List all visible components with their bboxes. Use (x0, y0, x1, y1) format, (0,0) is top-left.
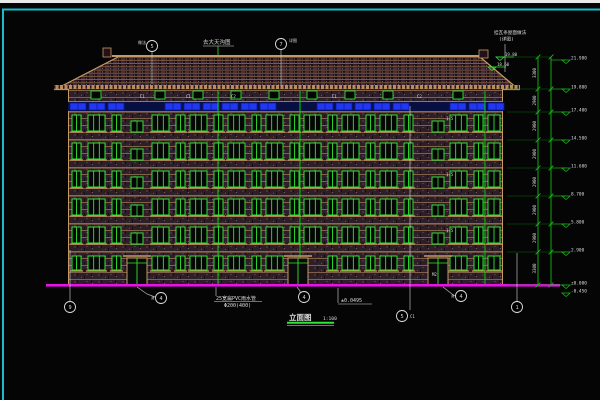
window-sill (110, 159, 123, 160)
callout-text: C1 (410, 314, 415, 319)
window (190, 171, 207, 187)
window-sill (326, 243, 339, 244)
window (228, 143, 245, 159)
window-sill (110, 243, 123, 244)
window (88, 256, 105, 270)
elevation-value: 8.700 (571, 192, 585, 198)
elevation-symbol (562, 224, 570, 228)
window-sill (378, 243, 399, 244)
window-sill (110, 187, 123, 188)
window (228, 256, 245, 270)
window-sill (486, 215, 502, 216)
elevation-value: ±0.000 (571, 281, 587, 287)
window-sill (174, 243, 187, 244)
roof-note-line2: (详图) (499, 36, 514, 43)
elevation-value: -0.450 (571, 289, 587, 295)
window-sill (288, 159, 301, 160)
callout-bubble-label: 5 (400, 314, 403, 320)
window-sill (486, 270, 502, 271)
top-center-note: 去大天沟图 (203, 38, 231, 46)
window-sill (340, 270, 361, 271)
window (380, 227, 397, 243)
window-type-label: 1.5 (446, 228, 454, 233)
window-sill (448, 270, 469, 271)
window-sill (212, 270, 225, 271)
window-sill (188, 187, 209, 188)
window-sill (486, 159, 502, 160)
pvc-note-line1: 25宽扁PVC雨水管 (216, 295, 256, 302)
window-sill (70, 187, 83, 188)
window-sill (188, 243, 209, 244)
window (88, 143, 105, 159)
window-sill (302, 243, 323, 244)
window-sill (212, 131, 225, 132)
window-sill (70, 159, 83, 160)
window-sill (448, 243, 469, 244)
window (266, 256, 283, 270)
window (304, 115, 321, 131)
window-sill (340, 131, 361, 132)
window-sill (264, 215, 285, 216)
window-sill (150, 243, 171, 244)
window-type-label: C1 (186, 94, 191, 99)
window (342, 171, 359, 187)
roof (54, 48, 520, 90)
window-sill (150, 131, 171, 132)
window-sill (288, 187, 301, 188)
window-sill (110, 215, 123, 216)
elevation-symbol (562, 252, 570, 256)
roof-elevation-value: 19.80 (505, 52, 518, 57)
window-sill (288, 131, 301, 132)
window-sill (472, 187, 485, 188)
dim-value: 2900 (532, 232, 537, 243)
window (190, 227, 207, 243)
window-sill (402, 215, 415, 216)
window-sill (448, 187, 469, 188)
window-sill (364, 215, 377, 216)
callout-text: 做法 (138, 39, 146, 45)
window (342, 143, 359, 159)
window-sill (226, 159, 247, 160)
window (152, 256, 169, 270)
dim-value: 2900 (532, 120, 537, 131)
dim-value: 2900 (532, 176, 537, 187)
window-sill (70, 243, 83, 244)
roof-elevation-symbol (496, 57, 504, 61)
window-sill (302, 159, 323, 160)
window-sill (70, 215, 83, 216)
elevation-symbol (562, 89, 570, 93)
elevation-symbol (562, 60, 570, 64)
window-sill (250, 215, 263, 216)
window-sill (86, 243, 107, 244)
attic-window (345, 91, 355, 99)
window (450, 143, 467, 159)
dim-value: 3300 (532, 263, 537, 274)
callout-text: 详图 (289, 37, 297, 43)
elevation-value: 21.980 (571, 56, 587, 62)
window-sill (364, 159, 377, 160)
window-type-label: 1.5 (446, 116, 454, 121)
dim-value: 3300 (532, 67, 537, 78)
callout-bubble-label: 5 (150, 44, 153, 50)
window-sill (486, 131, 502, 132)
elevation-symbol (562, 285, 570, 289)
callout-bubble-label: 9 (68, 305, 71, 311)
window-sill (86, 215, 107, 216)
elevation-value: 5.800 (571, 220, 585, 226)
elevation-value: 17.400 (571, 108, 587, 114)
window-sill (70, 270, 83, 271)
window-sill (188, 159, 209, 160)
window-sill (250, 131, 263, 132)
window (450, 199, 467, 215)
window-sill (472, 243, 485, 244)
window (152, 199, 169, 215)
window-sill (340, 159, 361, 160)
window (88, 171, 105, 187)
window (342, 199, 359, 215)
blue-band-bg (68, 102, 503, 111)
window (190, 256, 207, 270)
window-sill (326, 131, 339, 132)
window-sill (364, 131, 377, 132)
window-sill (110, 131, 123, 132)
window-sill (174, 159, 187, 160)
roof-slope (56, 57, 518, 89)
window-sill (378, 131, 399, 132)
window (152, 115, 169, 131)
ground-line (46, 284, 560, 287)
callout-bubble-label: 7 (279, 42, 282, 48)
window-sill (302, 187, 323, 188)
window-sill (212, 187, 225, 188)
window (380, 143, 397, 159)
window-sill (264, 159, 285, 160)
window-sill (402, 187, 415, 188)
window (190, 143, 207, 159)
window-sill (302, 131, 323, 132)
window-sill (288, 215, 301, 216)
window-sill (226, 187, 247, 188)
window (228, 171, 245, 187)
elevation-symbol (562, 196, 570, 200)
window-sill (378, 215, 399, 216)
window (304, 143, 321, 159)
window-sill (250, 159, 263, 160)
top-white-strip (0, 0, 600, 3)
window-type-label: 1.5 (446, 172, 454, 177)
window-type-label: C1 (332, 94, 337, 99)
window (380, 171, 397, 187)
window-sill (378, 270, 399, 271)
window-sill (302, 215, 323, 216)
window-sill (174, 215, 187, 216)
elevation-symbol (562, 293, 570, 297)
window-sill (364, 243, 377, 244)
attic-window (155, 91, 165, 99)
callout-text: M (452, 294, 455, 299)
window (266, 199, 283, 215)
window (380, 256, 397, 270)
window (304, 171, 321, 187)
window-type-label: C2 (417, 94, 422, 99)
level-note: ±0.0495 (341, 298, 362, 304)
attic-window (307, 91, 317, 99)
window (228, 199, 245, 215)
window (152, 227, 169, 243)
window-sill (188, 215, 209, 216)
callout-bubble-label: 4 (302, 295, 305, 301)
window-sill (250, 270, 263, 271)
callout-bubble-label: 1 (515, 305, 518, 311)
attic-window (193, 91, 203, 99)
window (152, 143, 169, 159)
window (190, 115, 207, 131)
cad-viewport: C1C1C2C1C21.51.51.5M2 330029002900290029… (0, 0, 600, 400)
window-sill (448, 131, 469, 132)
window-sill (150, 215, 171, 216)
cad-canvas: C1C1C2C1C21.51.51.5M2 330029002900290029… (0, 0, 600, 400)
pvc-note-line2: Φ200(400) (224, 303, 251, 309)
window-sill (402, 131, 415, 132)
window-sill (264, 243, 285, 244)
drawing-title: 立面图 (289, 312, 312, 322)
window-sill (326, 159, 339, 160)
window-sill (378, 159, 399, 160)
window-sill (226, 131, 247, 132)
window-sill (364, 270, 377, 271)
window-type-label: M2 (432, 272, 437, 277)
window-sill (448, 215, 469, 216)
window-type-label: C1 (140, 94, 145, 99)
window (304, 227, 321, 243)
elevation-value: 2.900 (571, 248, 585, 254)
window-sill (264, 131, 285, 132)
attic-window (453, 91, 463, 99)
window (88, 227, 105, 243)
callout-bubble-label: 4 (459, 294, 462, 300)
window (228, 115, 245, 131)
window-sill (70, 131, 83, 132)
window-sill (472, 159, 485, 160)
window-type-label: C2 (231, 94, 236, 99)
window (380, 199, 397, 215)
window (266, 115, 283, 131)
window-sill (340, 243, 361, 244)
window (342, 256, 359, 270)
callout-bubble-label: 4 (159, 296, 162, 302)
dim-value: 2900 (532, 95, 537, 106)
ground-level-line (46, 284, 560, 287)
window-sill (250, 187, 263, 188)
window (380, 115, 397, 131)
window-sill (86, 131, 107, 132)
window-sill (402, 243, 415, 244)
window-sill (472, 131, 485, 132)
window (342, 227, 359, 243)
roof-vent (479, 50, 488, 58)
leader-line (297, 287, 300, 293)
window-sill (340, 215, 361, 216)
window (88, 199, 105, 215)
window-sill (226, 243, 247, 244)
window-sill (448, 159, 469, 160)
window-sill (486, 187, 502, 188)
window-sill (226, 215, 247, 216)
elevation-value: 19.800 (571, 85, 587, 91)
window-sill (472, 270, 485, 271)
attic-window (269, 91, 279, 99)
window-sill (212, 159, 225, 160)
window (450, 256, 467, 270)
elevation-symbol (562, 112, 570, 116)
window-sill (486, 243, 502, 244)
window-sill (86, 159, 107, 160)
elevation-symbol (562, 168, 570, 172)
window-sill (150, 187, 171, 188)
elevation-symbol (562, 140, 570, 144)
window-sill (402, 270, 415, 271)
window-sill (378, 187, 399, 188)
window-sill (288, 243, 301, 244)
window-sill (226, 270, 247, 271)
window-sill (86, 270, 107, 271)
window (342, 115, 359, 131)
window-sill (250, 243, 263, 244)
dim-value: 2900 (532, 204, 537, 215)
window (266, 171, 283, 187)
window (266, 227, 283, 243)
window-sill (326, 215, 339, 216)
window (152, 171, 169, 187)
window-sill (264, 187, 285, 188)
roof-elevation-value: 18.60 (497, 62, 510, 67)
elevation-value: 11.600 (571, 164, 587, 170)
roof-note-line1: 挂瓦条屋面做法 (494, 29, 527, 36)
attic-window (91, 91, 101, 99)
window (88, 115, 105, 131)
window-sill (150, 159, 171, 160)
window-sill (188, 131, 209, 132)
window-sill (326, 270, 339, 271)
window-sill (340, 187, 361, 188)
window-sill (174, 270, 187, 271)
window (266, 143, 283, 159)
window-sill (110, 270, 123, 271)
window (190, 199, 207, 215)
window-sill (174, 187, 187, 188)
window-sill (212, 243, 225, 244)
elevation-value: 14.500 (571, 136, 587, 142)
window-sill (326, 187, 339, 188)
window-sill (174, 131, 187, 132)
window-sill (86, 187, 107, 188)
window-sill (188, 270, 209, 271)
drawing-title-scale: 1:100 (323, 316, 337, 322)
roof-vent (103, 48, 111, 57)
attic-window (383, 91, 393, 99)
window-sill (472, 215, 485, 216)
window-sill (212, 215, 225, 216)
window-sill (150, 270, 171, 271)
window (304, 199, 321, 215)
window (228, 227, 245, 243)
dim-value: 2900 (532, 148, 537, 159)
window-sill (264, 270, 285, 271)
window-sill (364, 187, 377, 188)
window-sill (402, 159, 415, 160)
